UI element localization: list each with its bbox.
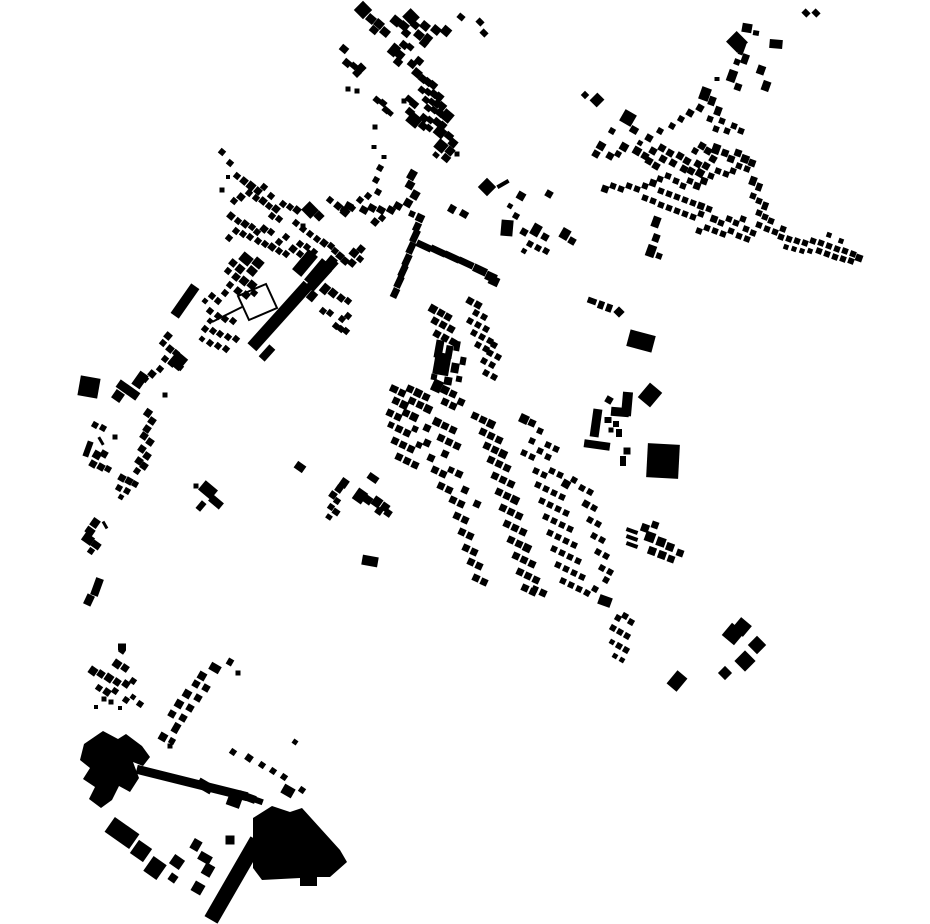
building-footprint <box>423 404 434 415</box>
building-footprint <box>478 415 487 424</box>
building-footprint <box>221 289 229 297</box>
building-footprint <box>364 192 372 200</box>
building-footprint <box>502 463 511 472</box>
building-footprint <box>712 125 720 133</box>
building-footprint <box>735 232 743 240</box>
building-footprint <box>641 194 649 202</box>
building-footprint <box>198 335 205 342</box>
building-footprint <box>229 317 237 325</box>
building-footprint <box>440 25 453 38</box>
building-footprint <box>520 449 528 457</box>
building-footprint <box>749 192 757 200</box>
building-footprint <box>718 117 726 125</box>
building-footprint <box>506 507 515 516</box>
building-footprint <box>657 187 665 195</box>
building-footprint <box>771 228 779 236</box>
building-footprint <box>554 505 562 513</box>
building-footprint <box>105 817 140 849</box>
building-footprint <box>282 250 290 258</box>
building-footprint <box>649 179 658 188</box>
building-footprint <box>163 393 168 398</box>
building-footprint <box>777 233 785 241</box>
building-footprint <box>667 555 676 564</box>
building-footprint <box>540 232 550 242</box>
building-footprint <box>405 384 414 393</box>
building-footprint <box>456 376 463 383</box>
building-footprint <box>755 182 763 192</box>
building-footprint <box>498 449 509 460</box>
building-footprint <box>99 424 107 432</box>
building-footprint <box>515 567 524 576</box>
building-footprint <box>528 453 536 461</box>
building-footprint <box>596 141 607 152</box>
building-footprint <box>474 561 483 570</box>
building-footprint <box>402 456 411 465</box>
building-footprint <box>447 466 455 474</box>
building-footprint <box>627 618 635 626</box>
building-footprint <box>609 624 617 632</box>
building-footprint <box>170 722 181 734</box>
building-footprint <box>95 684 103 692</box>
building-footprint <box>448 495 457 504</box>
building-footprint <box>542 247 550 255</box>
building-footprint <box>226 175 230 179</box>
building-footprint <box>438 320 448 330</box>
building-footprint <box>393 412 402 421</box>
building-footprint <box>695 103 705 113</box>
building-footprint <box>206 339 214 347</box>
building-footprint <box>602 576 610 584</box>
building-footprint <box>847 257 855 265</box>
building-footprint <box>88 459 98 469</box>
building-footprint <box>726 69 739 83</box>
building-footprint <box>514 539 523 548</box>
building-footprint <box>626 534 639 542</box>
building-footprint <box>516 191 527 202</box>
building-footprint <box>195 500 206 512</box>
building-footprint <box>325 513 333 521</box>
building-footprint <box>826 232 832 238</box>
building-footprint <box>275 215 283 223</box>
building-footprint <box>402 99 407 104</box>
building-footprint <box>460 515 469 524</box>
building-footprint <box>710 215 719 224</box>
building-footprint <box>591 149 601 159</box>
building-footprint <box>672 177 680 185</box>
building-footprint <box>566 525 574 533</box>
building-footprint <box>561 479 572 490</box>
building-footprint <box>115 484 123 492</box>
building-footprint <box>465 296 475 306</box>
building-footprint <box>783 244 789 250</box>
building-footprint <box>743 235 751 243</box>
building-footprint <box>121 679 131 689</box>
building-footprint <box>727 155 736 164</box>
building-footprint <box>506 535 515 544</box>
building-footprint <box>612 653 619 660</box>
building-footprint <box>163 331 173 341</box>
building-footprint <box>514 511 523 520</box>
building-footprint <box>408 210 416 218</box>
building-footprint <box>406 444 415 453</box>
building-footprint <box>288 244 298 254</box>
building-footprint <box>697 202 706 211</box>
building-footprint <box>619 142 630 153</box>
building-footprint <box>727 227 735 235</box>
building-footprint <box>452 441 461 450</box>
building-footprint <box>554 533 562 541</box>
building-footprint <box>527 418 536 427</box>
building-footprint <box>606 568 614 576</box>
building-footprint <box>715 77 720 81</box>
building-footprint <box>296 240 304 248</box>
building-footprint <box>519 227 529 237</box>
building-footprint <box>473 300 483 310</box>
building-footprint <box>120 663 130 673</box>
building-footprint <box>665 542 675 552</box>
building-footprint <box>455 152 460 157</box>
building-footprint <box>527 559 536 568</box>
building-footprint <box>102 687 112 697</box>
building-footprint <box>178 713 188 723</box>
building-footprint <box>624 448 631 455</box>
building-footprint <box>372 145 377 149</box>
building-footprint <box>415 400 424 409</box>
building-footprint <box>849 250 857 258</box>
building-footprint <box>550 489 558 497</box>
building-footprint <box>450 362 460 373</box>
building-footprint <box>512 212 520 220</box>
building-footprint <box>232 227 240 235</box>
building-footprint <box>494 435 503 444</box>
building-footprint <box>567 581 575 589</box>
building-footprint <box>590 532 598 540</box>
building-footprint <box>436 433 445 442</box>
building-footprint <box>430 24 442 36</box>
building-footprint <box>538 588 547 597</box>
building-footprint <box>578 573 586 581</box>
building-footprint <box>536 447 544 455</box>
building-footprint <box>500 220 513 237</box>
building-footprint <box>346 87 351 92</box>
building-footprint <box>714 167 722 175</box>
building-footprint <box>478 427 487 436</box>
building-footprint <box>708 154 718 164</box>
building-footprint <box>432 151 440 159</box>
building-footprint <box>540 471 548 479</box>
building-footprint <box>755 221 763 229</box>
building-footprint <box>685 108 695 118</box>
building-footprint <box>361 555 378 568</box>
building-footprint <box>605 417 612 423</box>
building-footprint <box>644 133 654 143</box>
building-footprint <box>673 207 681 215</box>
building-footprint <box>665 190 673 198</box>
building-footprint <box>534 481 542 489</box>
building-footprint <box>536 427 544 435</box>
building-footprint <box>611 407 630 418</box>
building-footprint <box>598 564 606 572</box>
building-footprint <box>817 239 825 247</box>
building-footprint <box>459 357 466 366</box>
building-footprint <box>590 504 598 512</box>
building-footprint <box>622 646 630 654</box>
building-footprint <box>482 325 490 333</box>
building-footprint <box>169 854 185 870</box>
building-footprint <box>448 389 457 398</box>
building-footprint <box>749 229 757 237</box>
building-footprint <box>510 523 519 532</box>
building-footprint <box>372 176 380 184</box>
building-footprint <box>707 172 715 180</box>
building-footprint <box>718 666 732 680</box>
building-footprint <box>594 520 602 528</box>
building-footprint <box>394 452 403 461</box>
building-footprint <box>403 198 414 209</box>
building-footprint <box>390 287 401 299</box>
building-footprint <box>292 739 299 746</box>
building-footprint <box>529 223 543 238</box>
building-footprint <box>801 239 809 247</box>
building-footprint <box>605 303 613 313</box>
building-footprint <box>686 177 694 185</box>
building-footprint <box>168 351 188 371</box>
building-footprint <box>741 23 752 34</box>
building-footprint <box>229 748 237 756</box>
building-footprint <box>584 439 611 451</box>
building-footprint <box>226 211 236 221</box>
building-footprint <box>755 209 763 217</box>
building-footprint <box>609 639 616 646</box>
building-footprint <box>479 28 488 37</box>
building-footprint <box>703 224 711 232</box>
building-footprint <box>734 149 743 158</box>
building-footprint <box>303 243 311 251</box>
building-footprint <box>761 213 769 221</box>
building-footprint <box>280 784 295 799</box>
building-footprint <box>717 219 725 227</box>
building-footprint <box>413 388 424 399</box>
building-footprint <box>366 472 379 484</box>
building-footprint <box>244 753 254 763</box>
building-footprint <box>415 441 423 449</box>
building-footprint <box>488 361 496 369</box>
building-footprint <box>478 333 486 341</box>
building-outline <box>238 284 277 320</box>
building-footprint <box>719 230 727 238</box>
building-footprint <box>440 421 449 430</box>
building-footprint <box>617 185 625 193</box>
building-footprint <box>649 197 657 205</box>
building-footprint <box>440 397 449 406</box>
building-footprint <box>546 529 554 537</box>
building-footprint <box>779 225 787 233</box>
building-footprint <box>705 205 713 213</box>
building-footprint <box>394 424 403 433</box>
building-footprint <box>619 109 637 127</box>
building-footprint <box>502 491 511 500</box>
building-footprint <box>689 213 697 221</box>
building-footprint <box>695 168 706 179</box>
building-footprint <box>159 339 167 347</box>
building-footprint <box>534 244 542 252</box>
figure-ground-map <box>0 0 930 924</box>
building-footprint <box>823 250 831 258</box>
building-footprint <box>651 521 660 530</box>
building-footprint <box>470 411 479 420</box>
building-footprint <box>214 342 222 350</box>
building-footprint <box>447 204 457 214</box>
building-footprint <box>438 469 447 478</box>
building-footprint <box>602 552 610 560</box>
building-footprint <box>472 309 480 317</box>
building-footprint <box>570 541 578 549</box>
building-footprint <box>389 384 399 394</box>
building-footprint <box>228 258 238 268</box>
building-footprint <box>89 517 101 529</box>
building-footprint <box>494 353 502 361</box>
building-footprint <box>658 154 668 164</box>
building-footprint <box>578 484 586 492</box>
building-footprint <box>326 196 334 204</box>
building-footprint <box>233 172 241 180</box>
building-footprint <box>397 388 406 397</box>
building-footprint <box>791 246 797 252</box>
building-footprint <box>87 547 95 555</box>
building-footprint <box>542 513 550 521</box>
building-footprint <box>598 536 606 544</box>
building-footprint <box>729 167 737 175</box>
building-footprint <box>136 700 144 708</box>
building-footprint <box>430 316 440 326</box>
building-footprint <box>428 304 439 315</box>
building-footprint <box>550 545 558 553</box>
building-footprint <box>681 210 689 218</box>
building-footprint <box>461 543 470 552</box>
building-footprint <box>432 417 443 428</box>
building-footprint <box>269 767 277 775</box>
building-footprint <box>521 248 528 255</box>
building-footprint <box>531 575 540 584</box>
building-footprint <box>222 345 230 353</box>
building-footprint <box>382 155 387 159</box>
building-footprint <box>456 397 465 406</box>
building-footprint <box>651 161 661 171</box>
building-footprint <box>626 527 639 535</box>
building-footprint <box>82 440 93 457</box>
building-footprint <box>732 219 740 227</box>
building-footprint <box>638 383 662 408</box>
building-footprint <box>123 487 131 495</box>
building-footprint <box>440 449 449 458</box>
building-footprint <box>581 499 591 509</box>
building-footprint <box>444 437 453 446</box>
building-footprint <box>112 677 122 687</box>
building-footprint <box>224 333 232 341</box>
building-footprint <box>695 227 703 235</box>
building-footprint <box>559 577 567 585</box>
building-footprint <box>831 253 839 261</box>
building-footprint <box>465 531 474 540</box>
building-footprint <box>647 546 657 556</box>
building-footprint <box>405 180 416 191</box>
building-footprint <box>197 851 213 865</box>
building-footprint <box>544 453 552 461</box>
building-footprint <box>838 238 844 244</box>
building-footprint <box>472 263 488 276</box>
building-footprint <box>147 369 157 379</box>
building-footprint <box>226 159 234 167</box>
building-footprint <box>737 127 745 135</box>
building-footprint <box>113 435 118 440</box>
building-footprint <box>755 197 763 205</box>
building-footprint <box>402 428 411 437</box>
building-footprint <box>562 509 570 517</box>
building-footprint <box>682 156 692 166</box>
building-footprint <box>542 485 550 493</box>
building-footprint <box>460 485 469 494</box>
building-footprint <box>633 185 641 193</box>
building-footprint <box>657 201 665 209</box>
building-footprint <box>558 493 566 501</box>
building-footprint <box>474 341 482 349</box>
building-footprint <box>190 880 205 895</box>
building-footprint <box>456 12 465 21</box>
building-footprint <box>546 501 554 509</box>
building-footprint <box>480 357 488 365</box>
building-footprint <box>538 497 546 505</box>
building-footprint <box>656 127 664 135</box>
building-footprint <box>713 106 723 117</box>
building-footprint <box>675 151 685 161</box>
building-footprint <box>723 127 731 135</box>
building-footprint <box>558 521 566 529</box>
building-footprint <box>486 419 497 430</box>
building-footprint <box>419 20 431 32</box>
building-footprint <box>466 317 474 325</box>
building-footprint <box>697 210 705 218</box>
building-footprint <box>102 521 109 529</box>
building-footprint <box>374 188 382 196</box>
building-footprint <box>591 585 599 593</box>
building-footprint <box>191 679 201 689</box>
building-footprint <box>193 693 203 703</box>
building-footprint <box>280 773 288 781</box>
building-footprint <box>282 233 290 241</box>
building-footprint <box>650 215 661 228</box>
building-footprint <box>619 657 626 664</box>
building-footprint <box>676 549 685 558</box>
building-footprint <box>422 438 431 447</box>
building-footprint <box>356 196 364 204</box>
building-footprint <box>145 437 155 447</box>
building-footprint <box>668 158 678 168</box>
building-footprint <box>725 215 733 223</box>
building-footprint <box>466 557 475 566</box>
building-footprint <box>294 461 307 473</box>
building-footprint <box>111 687 119 695</box>
building-footprint <box>604 395 614 405</box>
building-footprint <box>626 541 639 549</box>
building-footprint <box>566 553 574 561</box>
building-footprint <box>91 421 99 429</box>
building-footprint <box>721 149 730 158</box>
building-footprint <box>625 182 633 190</box>
building-footprint <box>469 547 478 556</box>
building-footprint <box>799 248 805 254</box>
building-footprint <box>143 856 166 880</box>
building-footprint <box>586 516 594 524</box>
